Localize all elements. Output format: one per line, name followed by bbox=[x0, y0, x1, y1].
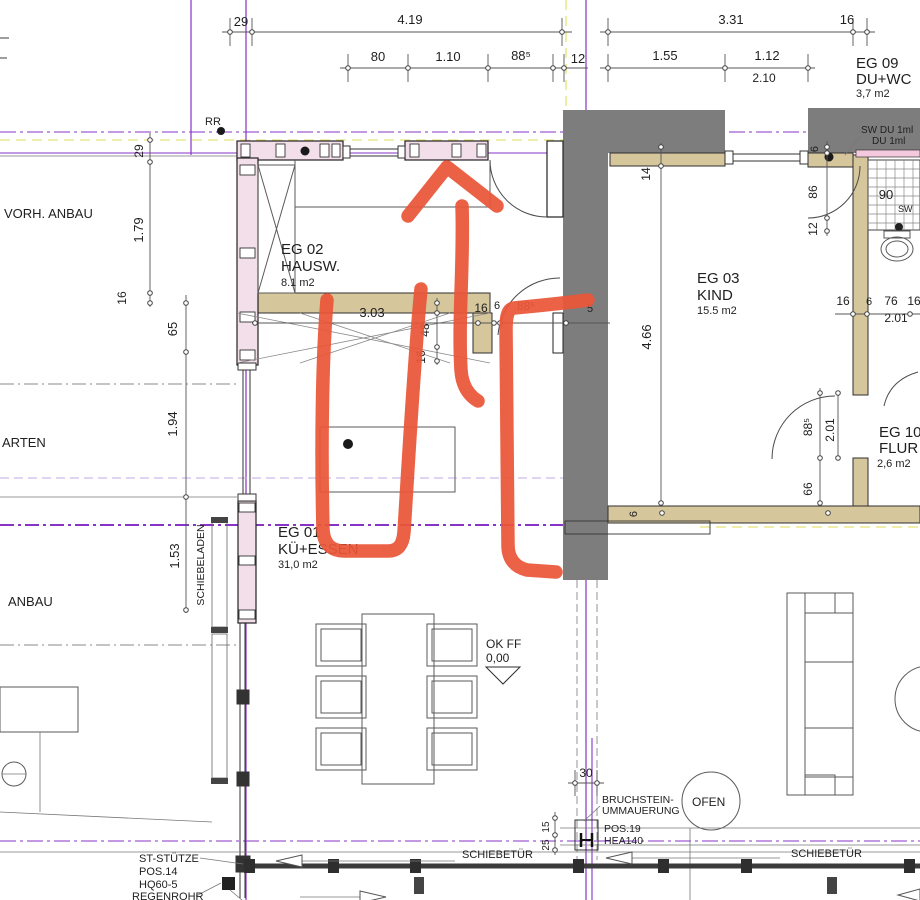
room-eg02-area: 8.1 m2 bbox=[281, 277, 315, 289]
label-hea140: HEA140 bbox=[604, 835, 643, 847]
dim-66: 66 bbox=[801, 482, 815, 496]
dim-86: 86 bbox=[806, 185, 820, 199]
dim-16-r2: 16 bbox=[907, 294, 920, 308]
dim-201-r: 2.01 bbox=[884, 311, 908, 325]
dim-110: 1.10 bbox=[435, 49, 460, 64]
dim-201-flur: 2.01 bbox=[823, 418, 837, 442]
dim-65: 65 bbox=[165, 322, 180, 336]
dim-419: 4.19 bbox=[397, 12, 422, 27]
dim-25: 25 bbox=[541, 839, 552, 851]
dim-112: 1.12 bbox=[754, 48, 779, 63]
label-level: 0,00 bbox=[486, 651, 510, 665]
room-eg10-name: FLUR bbox=[879, 440, 918, 457]
dim-6-r: 6 bbox=[866, 296, 872, 308]
dim-6-wall: 6 bbox=[628, 511, 640, 517]
room-eg09-id: EG 09 bbox=[856, 55, 899, 72]
dim-885-flur: 88⁵ bbox=[801, 418, 815, 436]
room-eg03-name: KIND bbox=[697, 287, 733, 304]
dim-885-top: 88⁵ bbox=[511, 48, 531, 63]
dim-16-left: 16 bbox=[115, 291, 129, 305]
label-du: DU 1ml bbox=[872, 136, 905, 147]
label-schiebeladen: SCHIEBELADEN bbox=[195, 524, 207, 605]
room-eg01-id: EG 01 bbox=[278, 524, 321, 541]
label-schiebetuer-1: SCHIEBETÜR bbox=[462, 849, 533, 861]
dim-30: 30 bbox=[579, 766, 593, 780]
label-ok-ff: OK FF bbox=[486, 637, 521, 651]
label-st-stuetze: ST-STÜTZE bbox=[139, 853, 199, 865]
label-anbau: ANBAU bbox=[8, 594, 53, 609]
label-schiebetuer-2: SCHIEBETÜR bbox=[791, 848, 862, 860]
dim-90-shower: 90 bbox=[879, 187, 893, 202]
dim-6-door: 6 bbox=[494, 300, 500, 312]
dim-210: 2.10 bbox=[752, 71, 776, 85]
label-regenrohr: REGENROHR bbox=[132, 891, 204, 900]
dim-466: 4.66 bbox=[639, 324, 654, 349]
label-garten: ARTEN bbox=[2, 435, 46, 450]
bath-wall-strip bbox=[856, 150, 920, 157]
dim-16-door: 16 bbox=[474, 301, 488, 315]
label-hq60: HQ60-5 bbox=[139, 879, 178, 891]
dim-12-top: 12 bbox=[571, 51, 585, 66]
dim-29-left: 29 bbox=[132, 144, 146, 158]
room-eg02-id: EG 02 bbox=[281, 241, 324, 258]
dim-331: 3.31 bbox=[718, 12, 743, 27]
label-sw-du: SW DU 1ml bbox=[861, 125, 913, 136]
label-sw-small: SW bbox=[898, 204, 913, 214]
label-pos19: POS.19 bbox=[604, 823, 641, 835]
label-ofen: OFEN bbox=[692, 795, 725, 809]
dim-153: 1.53 bbox=[167, 543, 182, 568]
room-eg10-id: EG 10 bbox=[879, 424, 920, 441]
dim-80: 80 bbox=[371, 49, 385, 64]
dim-14: 14 bbox=[639, 167, 653, 181]
dim-303: 3.03 bbox=[359, 305, 384, 320]
floorplan-drawing: EG 02HAUSW.8.1 m2EG 03KIND15.5 m2EG 09DU… bbox=[0, 0, 920, 900]
dim-15: 15 bbox=[541, 821, 552, 833]
room-eg03-id: EG 03 bbox=[697, 270, 740, 287]
room-eg09-name: DU+WC bbox=[856, 71, 912, 88]
room-eg03-area: 15.5 m2 bbox=[697, 305, 737, 317]
dim-6-bath: 6 bbox=[809, 146, 821, 152]
room-eg09-area: 3,7 m2 bbox=[856, 88, 890, 100]
label-pos14: POS.14 bbox=[139, 866, 178, 878]
room-eg10-area: 2,6 m2 bbox=[877, 458, 911, 470]
schiebeladen-track bbox=[211, 517, 228, 784]
dim-16-r1: 16 bbox=[836, 294, 850, 308]
dim-179: 1.79 bbox=[131, 217, 146, 242]
dim-194: 1.94 bbox=[165, 411, 180, 436]
dim-29-top: 29 bbox=[234, 14, 248, 29]
room-eg02-name: HAUSW. bbox=[281, 258, 340, 275]
label-bruchstein-2: UMMAUERUNG bbox=[602, 805, 680, 817]
dim-12-bath: 12 bbox=[806, 222, 820, 236]
dim-155: 1.55 bbox=[652, 48, 677, 63]
dim-16-top: 16 bbox=[840, 12, 854, 27]
room-eg01-area: 31,0 m2 bbox=[278, 559, 318, 571]
label-rr: RR bbox=[205, 116, 221, 128]
steel-beam-hatch bbox=[565, 521, 710, 534]
label-vorh-anbau: VORH. ANBAU bbox=[4, 206, 93, 221]
dim-76: 76 bbox=[884, 294, 898, 308]
